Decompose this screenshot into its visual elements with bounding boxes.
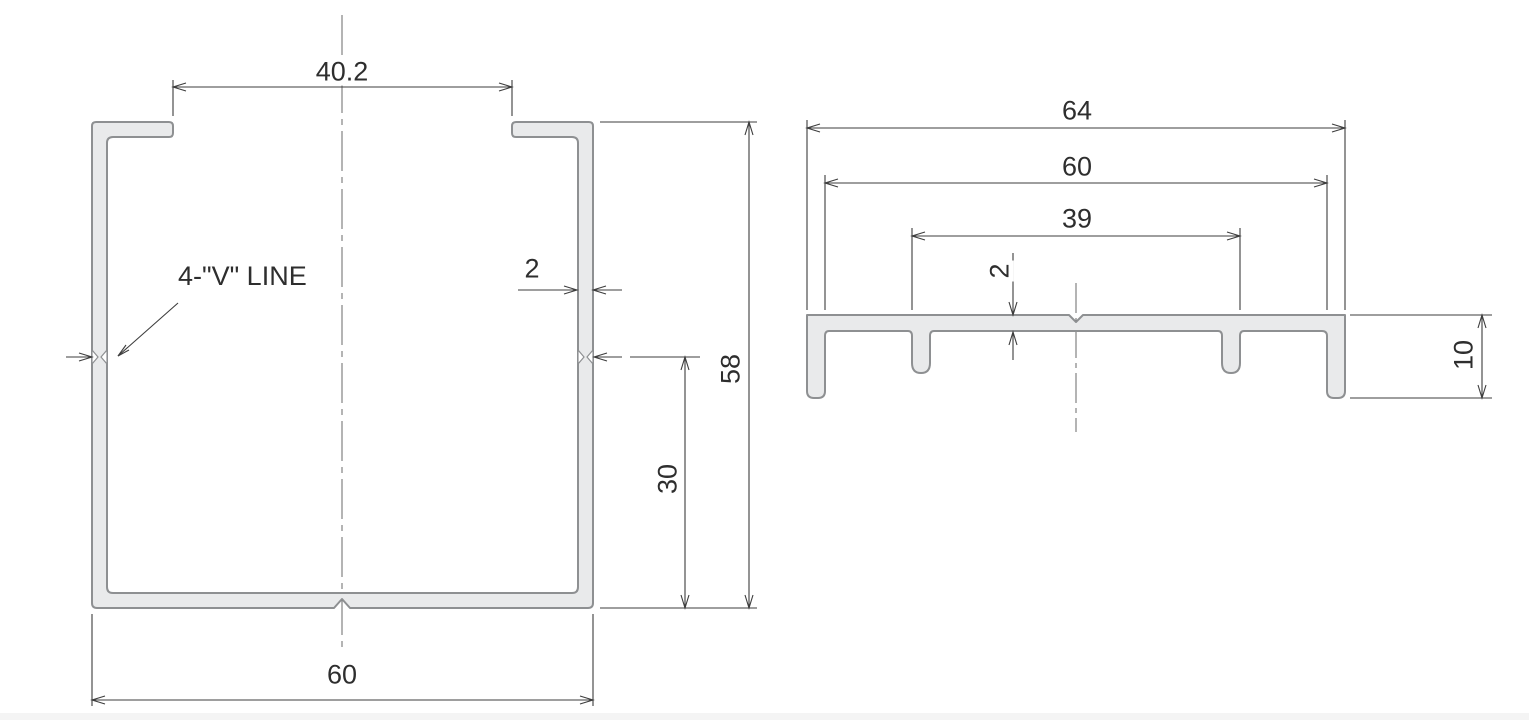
v-line-note-label: 4-"V" LINE bbox=[178, 263, 307, 290]
dim-overall-height-label: 58 bbox=[718, 351, 745, 387]
front-view-dimensions bbox=[66, 80, 757, 706]
dim-cap-overall-width-label: 64 bbox=[1059, 98, 1095, 125]
dim-cap-plate-thickness-label: 2 bbox=[987, 260, 1014, 281]
dim-overall-width-label: 60 bbox=[324, 662, 360, 689]
note-leader-line bbox=[118, 303, 178, 356]
dim-cap-rib-span-label: 39 bbox=[1059, 206, 1095, 233]
dim-opening-label: 40.2 bbox=[313, 59, 372, 86]
side-view-profile bbox=[807, 283, 1345, 432]
dim-cap-inner-width-label: 60 bbox=[1059, 154, 1095, 181]
drawing-geometry bbox=[0, 0, 1529, 720]
dim-wall-thickness-label: 2 bbox=[521, 256, 542, 283]
dim-cap-leg-height-label: 10 bbox=[1451, 337, 1478, 373]
side-view-dimensions bbox=[807, 120, 1492, 398]
dim-mark-height-label: 30 bbox=[655, 461, 682, 497]
front-view-profile bbox=[92, 15, 593, 648]
drawing-canvas: 40.2 4-"V" LINE 2 58 30 60 64 60 39 2 10 bbox=[0, 0, 1529, 720]
sheet-edge-shadow bbox=[0, 713, 1529, 720]
